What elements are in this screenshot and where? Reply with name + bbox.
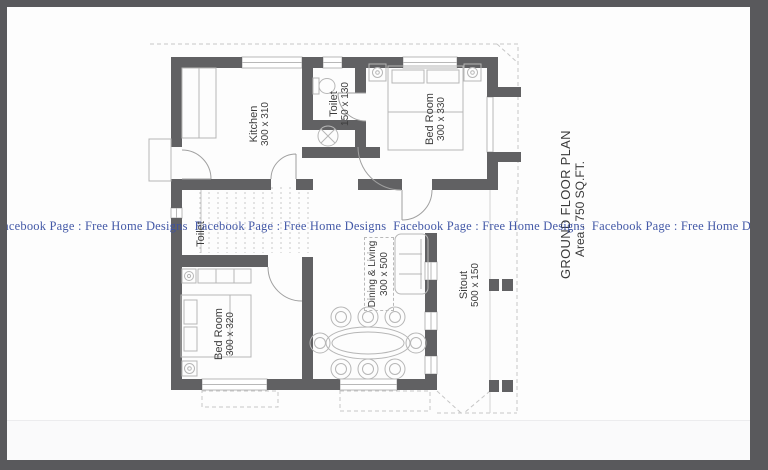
room-label-bedroom-1: Bed Room 300 x 330 (424, 59, 448, 179)
plan-title-text: GROUND FLOOR PLAN (558, 139, 573, 279)
room-label-kitchen: Kitchen 300 x 310 (248, 64, 272, 184)
dining-table (310, 307, 426, 379)
room-label-bedroom-2: Bed Room 300 x 320 (213, 274, 237, 394)
screenshot-frame: Kitchen 300 x 310 Toilet 150 x 130 Bed R… (0, 0, 768, 470)
kitchen-side-step (149, 139, 171, 181)
watermark-strip: Facebook Page : Free Home DesignsFaceboo… (7, 219, 750, 234)
room-label-dining-living: Dining & Living 300 x 500 (364, 237, 394, 311)
watermark-text: Facebook Page : Free Home Designs (195, 219, 387, 233)
plan-page: Kitchen 300 x 310 Toilet 150 x 130 Bed R… (7, 7, 750, 460)
room-label-sitout: Sitout 500 x 150 (458, 225, 482, 345)
watermark-text: Facebook Page : Free Home Designs (7, 219, 188, 233)
room-label-toilet-1: Toilet 150 x 130 (328, 44, 352, 164)
watermark-text: Facebook Page : Free Home Designs (592, 219, 750, 233)
sofa (395, 234, 428, 294)
watermark-text: Facebook Page : Free Home Designs (393, 219, 585, 233)
plan-title: GROUND FLOOR PLAN Area : 750 SQ.FT. (558, 139, 588, 279)
room-label-toilet-2: Toilet (195, 174, 207, 294)
plan-area-text: Area : 750 SQ.FT. (573, 139, 588, 279)
